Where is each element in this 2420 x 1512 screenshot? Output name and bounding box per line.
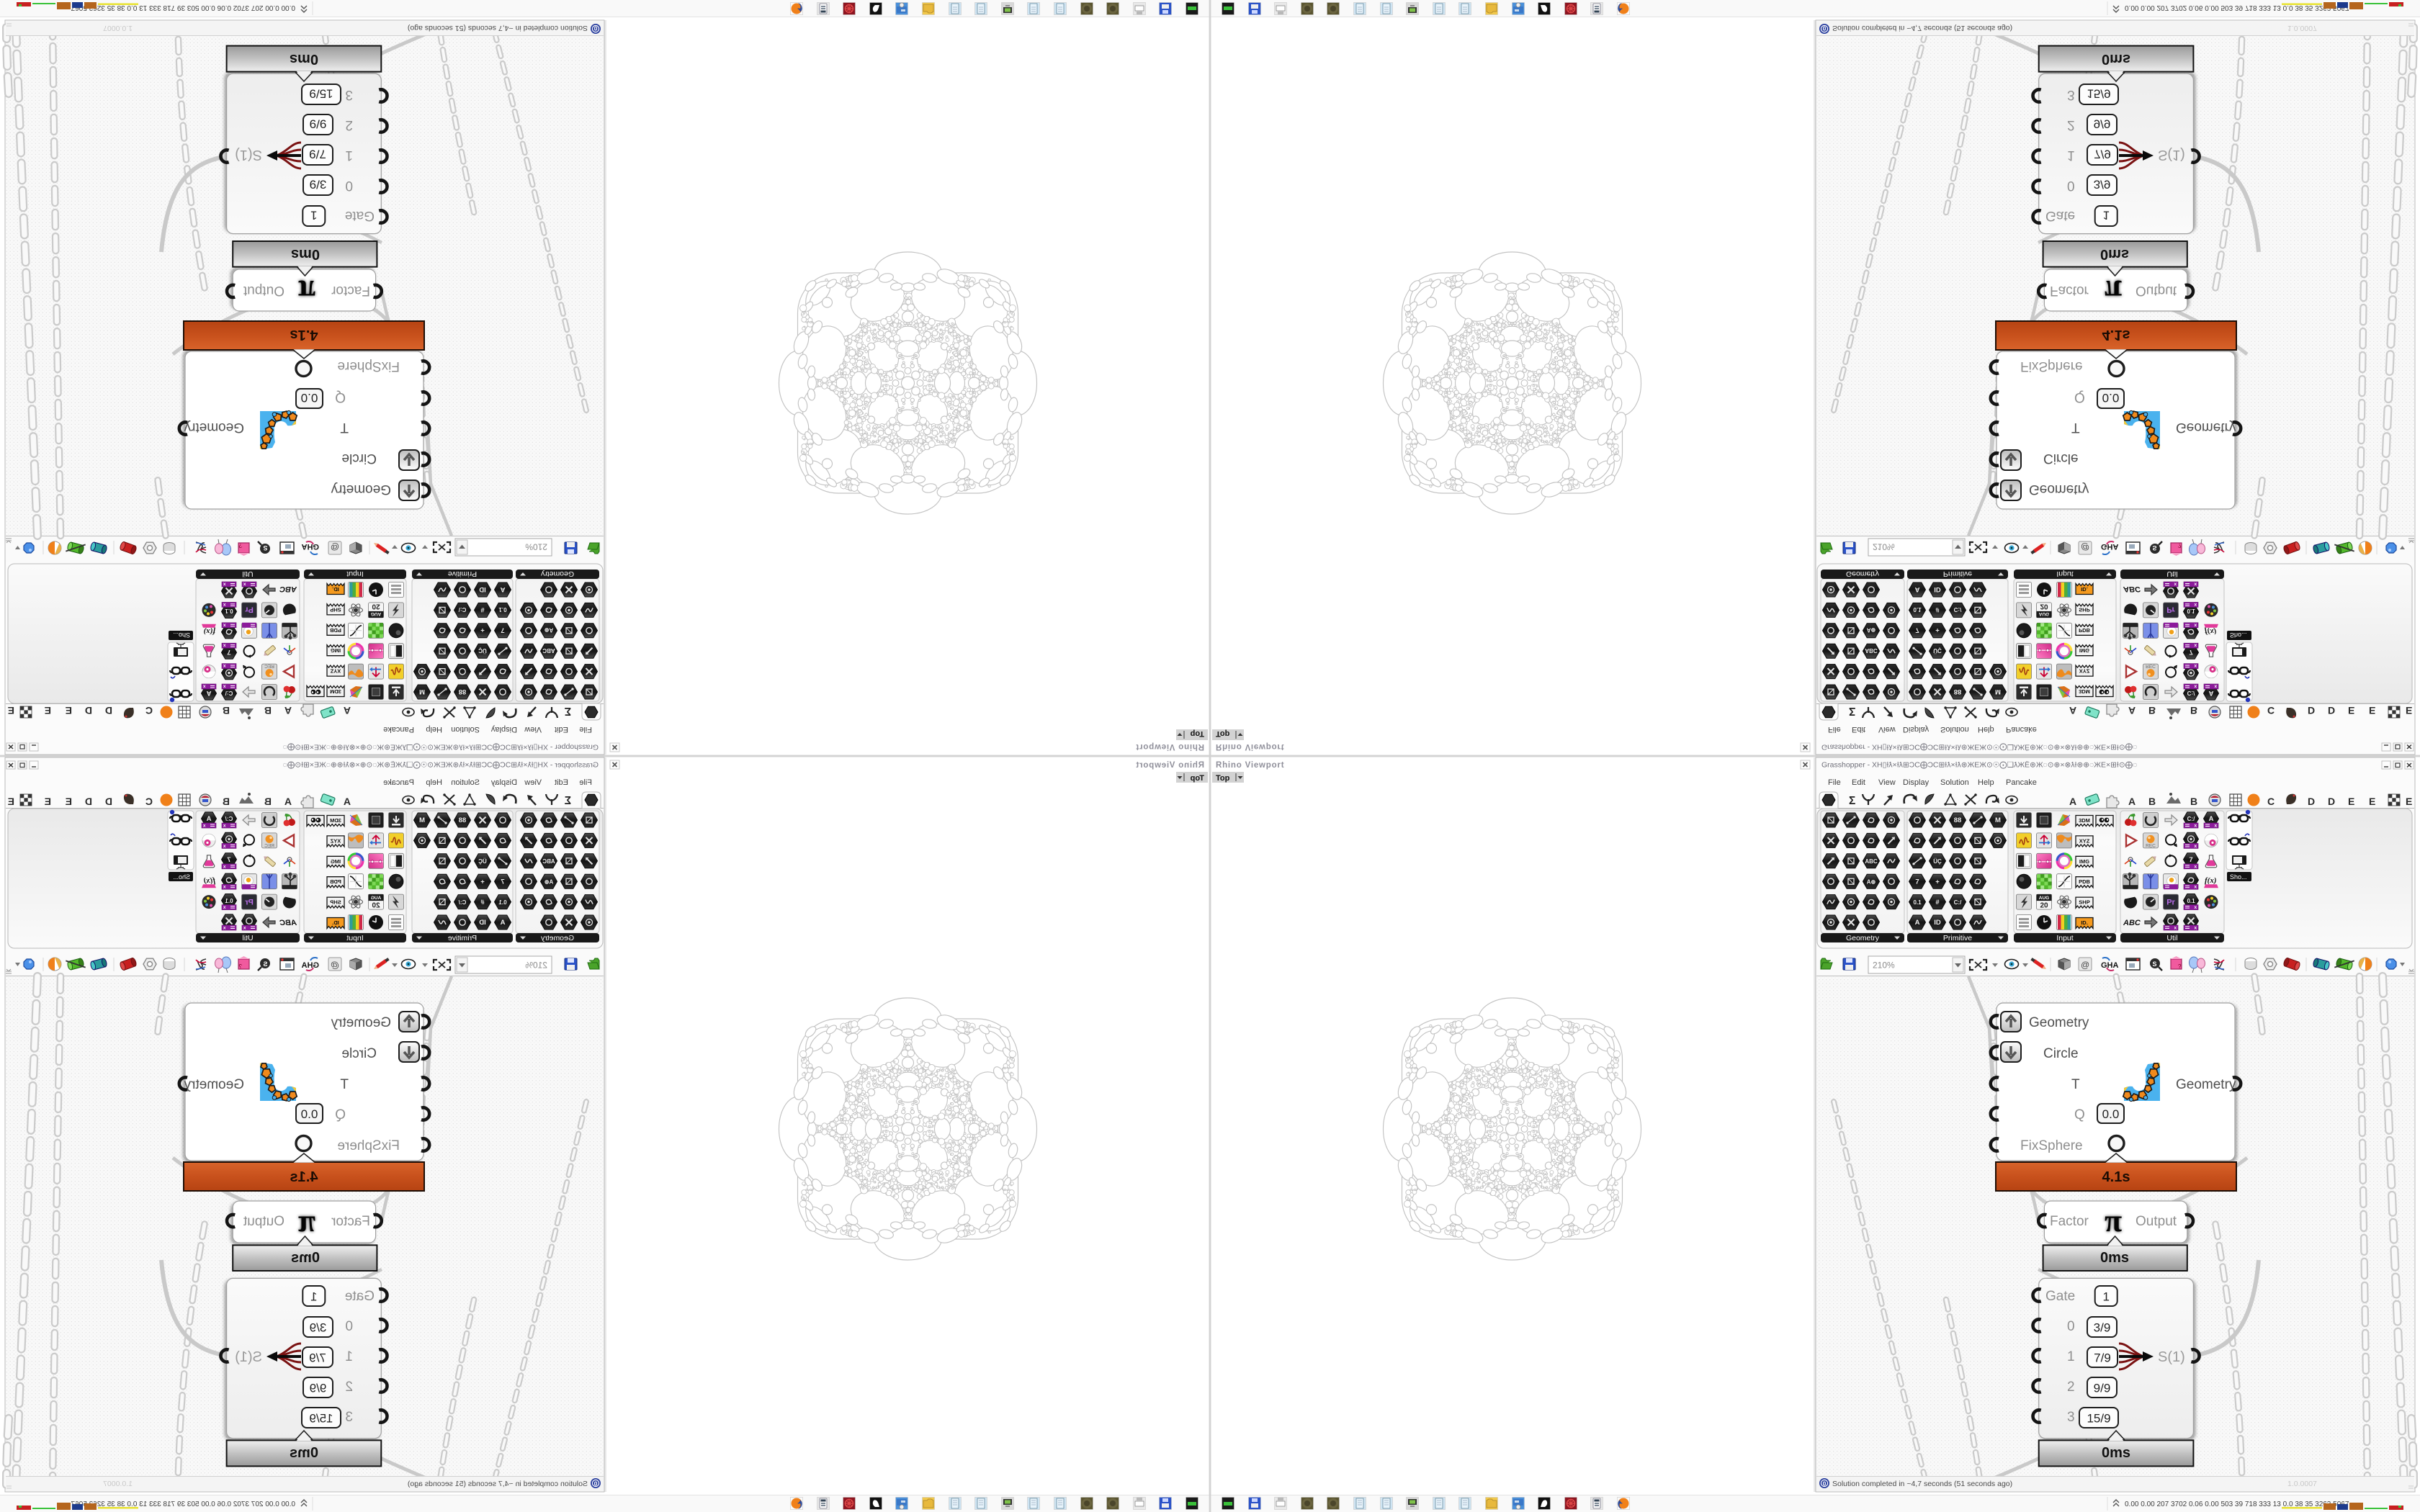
svg-text:20: 20	[2040, 902, 2048, 910]
svg-text:@: @	[2081, 960, 2089, 970]
svg-text:FixSphere: FixSphere	[2020, 1138, 2083, 1153]
svg-text:Input: Input	[2056, 934, 2073, 942]
svg-text:File: File	[1828, 778, 1841, 787]
svg-text:15/9: 15/9	[2087, 1412, 2110, 1426]
svg-text:AUG: AUG	[2039, 896, 2049, 901]
svg-text:x: x	[2195, 864, 2197, 869]
svg-text:D: D	[2328, 796, 2335, 807]
svg-text:0.0: 0.0	[2102, 1107, 2120, 1121]
svg-text:Edit: Edit	[1852, 778, 1865, 787]
svg-text:D: D	[2308, 796, 2315, 807]
svg-text:View: View	[1878, 778, 1896, 787]
svg-text:Help: Help	[1978, 778, 1994, 787]
svg-text:Pr: Pr	[2166, 899, 2175, 907]
svg-text:Rhino Viewport: Rhino Viewport	[1216, 761, 1284, 770]
svg-text:#: #	[1935, 899, 1940, 906]
svg-text:2: 2	[2067, 1380, 2075, 1395]
svg-text:A⊕: A⊕	[1867, 878, 1876, 885]
svg-text:C: C	[2267, 796, 2275, 807]
svg-text:Solution: Solution	[1940, 778, 1969, 787]
svg-text:x: x	[2195, 844, 2197, 849]
svg-text:Circle: Circle	[2043, 1046, 2079, 1061]
svg-text:XYZ: XYZ	[2079, 837, 2090, 844]
svg-text:A: A	[1915, 919, 1920, 927]
svg-text:x: x	[2195, 885, 2197, 890]
svg-text:SHP: SHP	[2079, 899, 2089, 906]
svg-text:T: T	[2071, 1077, 2080, 1092]
svg-text:IMG: IMG	[2079, 858, 2089, 865]
svg-text:x: x	[2195, 926, 2197, 931]
svg-text:E: E	[2348, 796, 2354, 807]
svg-text:A: A	[2209, 815, 2214, 823]
svg-text:x: x	[2195, 824, 2197, 829]
svg-text:ÜÇ: ÜÇ	[1933, 858, 1942, 865]
svg-text:4.1s: 4.1s	[2102, 1169, 2130, 1185]
svg-text:Sho...: Sho...	[2230, 873, 2247, 881]
svg-text:PDB: PDB	[2079, 878, 2090, 885]
svg-text:88: 88	[1954, 816, 1962, 824]
svg-text:+: +	[1935, 878, 1940, 886]
svg-text:0: 0	[1823, 1480, 1827, 1488]
svg-text:C:/: C:/	[2187, 816, 2195, 822]
svg-text:1.0.0007: 1.0.0007	[2287, 1480, 2317, 1488]
svg-text:A: A	[2069, 796, 2076, 807]
svg-text:E: E	[2406, 796, 2412, 807]
svg-text:f(x): f(x)	[2205, 876, 2217, 885]
svg-text:x: x	[2215, 824, 2218, 829]
svg-text:?: ?	[2178, 963, 2182, 970]
svg-text:Σ: Σ	[1849, 795, 1855, 807]
svg-text:ABC: ABC	[1865, 858, 1878, 865]
svg-text:Q: Q	[2074, 1107, 2085, 1122]
svg-text:Util: Util	[2166, 934, 2177, 942]
svg-text:7: 7	[1915, 878, 1919, 886]
svg-text:0ms: 0ms	[2100, 1250, 2129, 1266]
svg-text:210%: 210%	[1873, 960, 1895, 971]
svg-text:Top: Top	[1216, 774, 1230, 783]
svg-text:x: x	[2174, 926, 2177, 931]
svg-text:x: x	[2195, 905, 2197, 910]
svg-text:3: 3	[2067, 1410, 2075, 1425]
svg-text:Grasshopper - XH▯Ɨƛ×Ɨƛ⊞ƆC⨁ƆC⊞Ɨ: Grasshopper - XH▯Ɨƛ×Ɨƛ⊞ƆC⨁ƆC⊞Ɨƛ×Ɨƛ⊛ЖЕЖ⊙☉…	[1821, 761, 2137, 770]
svg-text:0: 0	[2067, 1319, 2075, 1334]
svg-text:0ms: 0ms	[2102, 1445, 2130, 1461]
svg-text:1: 1	[2067, 1349, 2075, 1364]
svg-text:Solution completed in ~4,7 sec: Solution completed in ~4,7 seconds (51 s…	[1832, 1480, 2012, 1488]
svg-text:Primitive: Primitive	[1943, 934, 1972, 942]
svg-text:Display: Display	[1903, 778, 1930, 787]
svg-text:A: A	[2128, 796, 2136, 807]
svg-text:1: 1	[2102, 1290, 2109, 1304]
svg-text:Geometry: Geometry	[2029, 1015, 2089, 1030]
svg-text:Geometry: Geometry	[2176, 1077, 2236, 1092]
svg-text:B: B	[2148, 796, 2156, 807]
svg-text:Gate: Gate	[2045, 1289, 2075, 1304]
svg-text:π: π	[2105, 1203, 2122, 1238]
svg-text:ABC: ABC	[2123, 919, 2141, 927]
svg-text:7: 7	[2189, 856, 2192, 864]
svg-text:0.1: 0.1	[2187, 898, 2195, 904]
svg-text:B: B	[2190, 796, 2197, 807]
svg-text:GHA: GHA	[2101, 961, 2119, 970]
svg-text:E: E	[2369, 796, 2375, 807]
svg-text:C:/: C:/	[1954, 899, 1962, 906]
svg-text:Geometry: Geometry	[1846, 934, 1880, 942]
svg-text:3/9: 3/9	[2094, 1321, 2111, 1335]
svg-text:3DM: 3DM	[2079, 817, 2090, 824]
svg-text:7/9: 7/9	[2094, 1351, 2111, 1365]
svg-text:ID: ID	[1934, 919, 1941, 927]
svg-text:Pancake: Pancake	[2006, 778, 2037, 787]
svg-text:S: S	[2153, 960, 2157, 968]
svg-text:REC: REC	[2146, 843, 2156, 848]
svg-text:Output: Output	[2136, 1214, 2177, 1229]
svg-text:0.1: 0.1	[1913, 899, 1922, 906]
svg-text:ID.: ID.	[2081, 919, 2088, 926]
svg-text:M: M	[1995, 816, 2001, 824]
svg-text:Factor: Factor	[2050, 1214, 2089, 1229]
svg-text:S(1): S(1)	[2158, 1349, 2185, 1365]
svg-text:9/9: 9/9	[2094, 1382, 2111, 1395]
